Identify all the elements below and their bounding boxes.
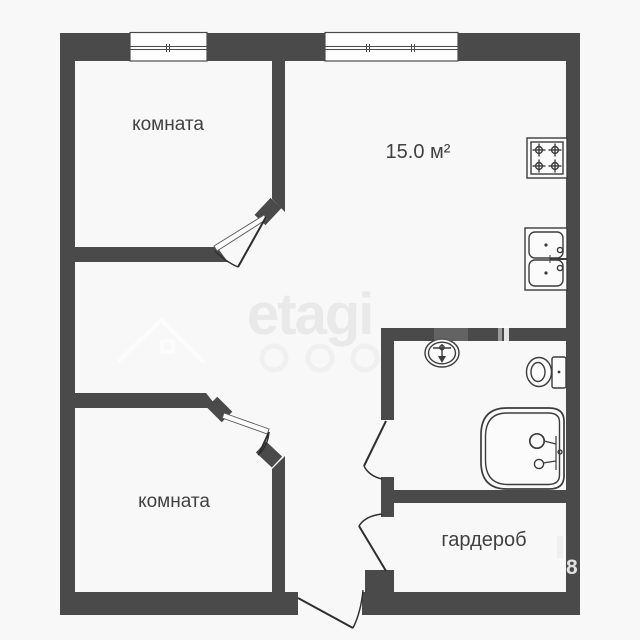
room-top-left-walls (75, 61, 285, 262)
bathroom-sink-icon (425, 339, 459, 367)
bottom-wall-segment (60, 592, 298, 615)
window-icon (325, 33, 458, 62)
right-wall (566, 33, 580, 615)
kitchen-area-label: 15.0 м² (386, 141, 451, 163)
floor-plan-drawing: etagi 8 комната 15.0 м² комната гардероб (0, 0, 640, 640)
floor-plan: etagi 8 комната 15.0 м² комната гардероб (0, 0, 640, 640)
door-swing-icon (364, 421, 386, 479)
kitchen-sink-icon (525, 228, 567, 290)
door-swing-icon (222, 413, 269, 455)
bottom-wall-segment (362, 592, 580, 615)
watermark-logo: etagi (247, 282, 372, 347)
top-wall-segment (458, 33, 580, 61)
stove-icon (527, 138, 567, 178)
wardrobe-label: гардероб (441, 529, 526, 551)
door-swing-icon (298, 590, 363, 628)
top-wall-segment (207, 33, 325, 61)
window-icon (130, 33, 207, 62)
bathtub-icon (481, 408, 564, 489)
room-top-left-label: комната (132, 114, 204, 135)
left-wall (60, 33, 75, 615)
toilet-icon (527, 357, 567, 388)
room-bottom-left-label: комната (138, 491, 210, 512)
door-swing-icon (359, 514, 386, 571)
watermark-digit: 8 (566, 556, 578, 579)
